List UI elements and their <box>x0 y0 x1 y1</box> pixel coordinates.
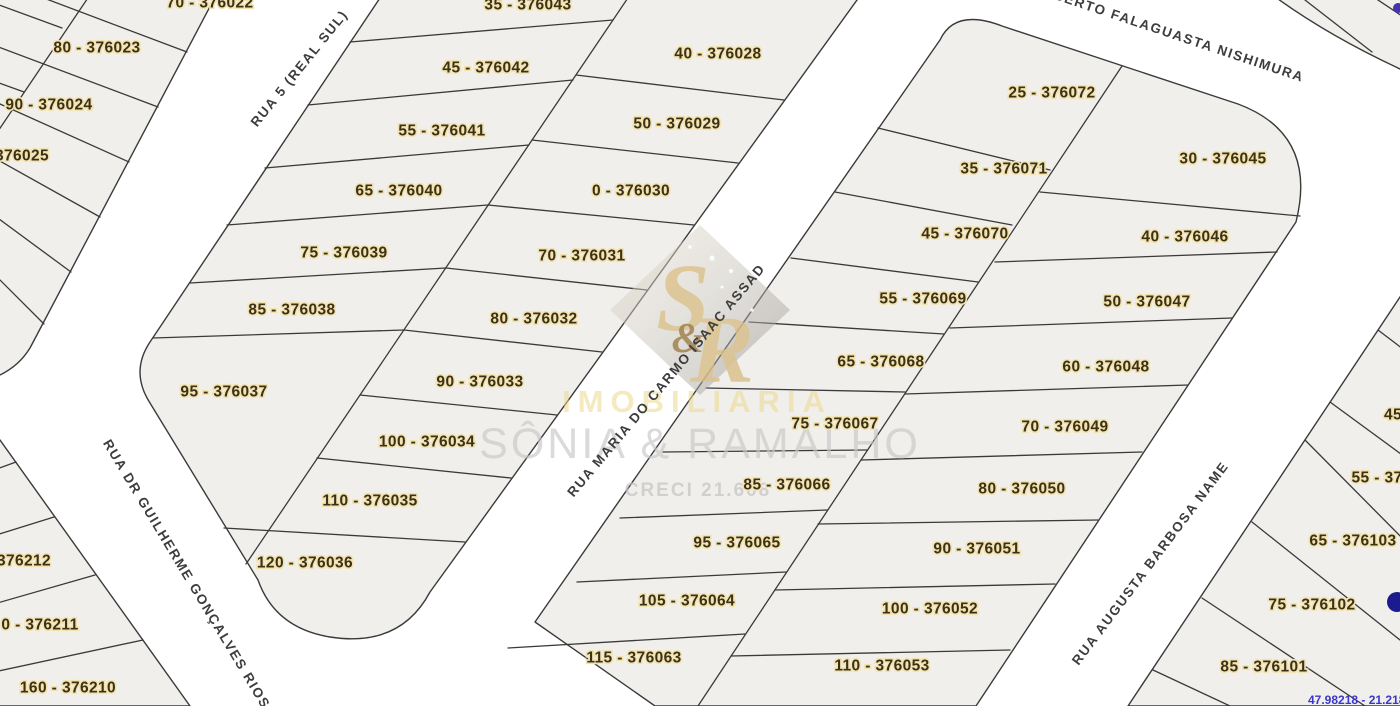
lot-label: 120 - 376036 <box>257 555 353 572</box>
lot-label: 75 - 376102 <box>1268 597 1355 614</box>
lot-label: 65 - 376040 <box>355 183 442 200</box>
lot-label: 95 - 376037 <box>180 384 267 401</box>
lot-label: 55 - 376041 <box>398 123 485 140</box>
lot-label: 75 - 376067 <box>791 416 878 433</box>
lot-label: 60 - 376048 <box>1062 359 1149 376</box>
cadastral-map[interactable]: S R & IMOBILIARIA SÔNIA & RAMALHO CRECI … <box>0 0 1400 706</box>
lot-label: 25 - 376072 <box>1008 85 1095 102</box>
map-svg[interactable]: S R & IMOBILIARIA SÔNIA & RAMALHO CRECI … <box>0 0 1400 706</box>
lot-label: 90 - 376024 <box>5 97 92 114</box>
lot-label: 70 - 376049 <box>1021 419 1108 436</box>
watermark-agency-type: IMOBILIARIA <box>562 384 832 419</box>
lot-label: 85 - 376038 <box>248 302 335 319</box>
lot-label: 45 - 376070 <box>921 226 1008 243</box>
lot-label: 100 - 376052 <box>882 601 978 618</box>
lot-label: 80 - 376023 <box>53 40 140 57</box>
lot-label: 50 - 376029 <box>633 116 720 133</box>
lot-label: 40 - 376028 <box>674 46 761 63</box>
lot-label: 80 - 376050 <box>978 481 1065 498</box>
lot-label: 55 - 376069 <box>879 291 966 308</box>
lot-label: 40 - 376046 <box>1141 229 1228 246</box>
lot-label: 35 - 376071 <box>960 161 1047 178</box>
lot-label: 100 - 376034 <box>379 434 475 451</box>
lot-label: 50 - 376047 <box>1103 294 1190 311</box>
lot-label: 0 - 376030 <box>592 183 670 200</box>
lot-label: 85 - 376101 <box>1220 659 1307 676</box>
lot-label: 30 - 376045 <box>1179 151 1266 168</box>
lot-label: 55 - 37 <box>1351 470 1400 487</box>
lot-label: 376025 <box>0 148 49 165</box>
lot-label: 35 - 376043 <box>484 0 571 14</box>
lot-label: 0 - 376211 <box>1 617 78 634</box>
lot-label: 70 - 376022 <box>166 0 253 12</box>
lot-label: 70 - 376031 <box>538 248 625 265</box>
lot-label: 45 <box>1384 407 1400 424</box>
lot-label: 105 - 376064 <box>639 593 735 610</box>
lot-label: 85 - 376066 <box>743 477 830 494</box>
lot-label: 110 - 376035 <box>322 493 417 510</box>
gps-coordinates: 47.98218 - 21.218 <box>1308 693 1400 706</box>
lot-label: 80 - 376032 <box>490 311 577 328</box>
lot-label: 376212 <box>0 553 51 570</box>
lot-label: 95 - 376065 <box>693 535 780 552</box>
lot-label: 45 - 376042 <box>442 60 529 77</box>
lot-label: 90 - 376033 <box>436 374 523 391</box>
lot-label: 90 - 376051 <box>933 541 1020 558</box>
lot-label: 160 - 376210 <box>20 680 116 697</box>
lot-label: 110 - 376053 <box>834 658 929 675</box>
lot-label: 75 - 376039 <box>300 245 387 262</box>
lot-label: 115 - 376063 <box>586 650 681 667</box>
lot-label: 65 - 376103 <box>1309 533 1396 550</box>
lot-label: 65 - 376068 <box>837 354 924 371</box>
